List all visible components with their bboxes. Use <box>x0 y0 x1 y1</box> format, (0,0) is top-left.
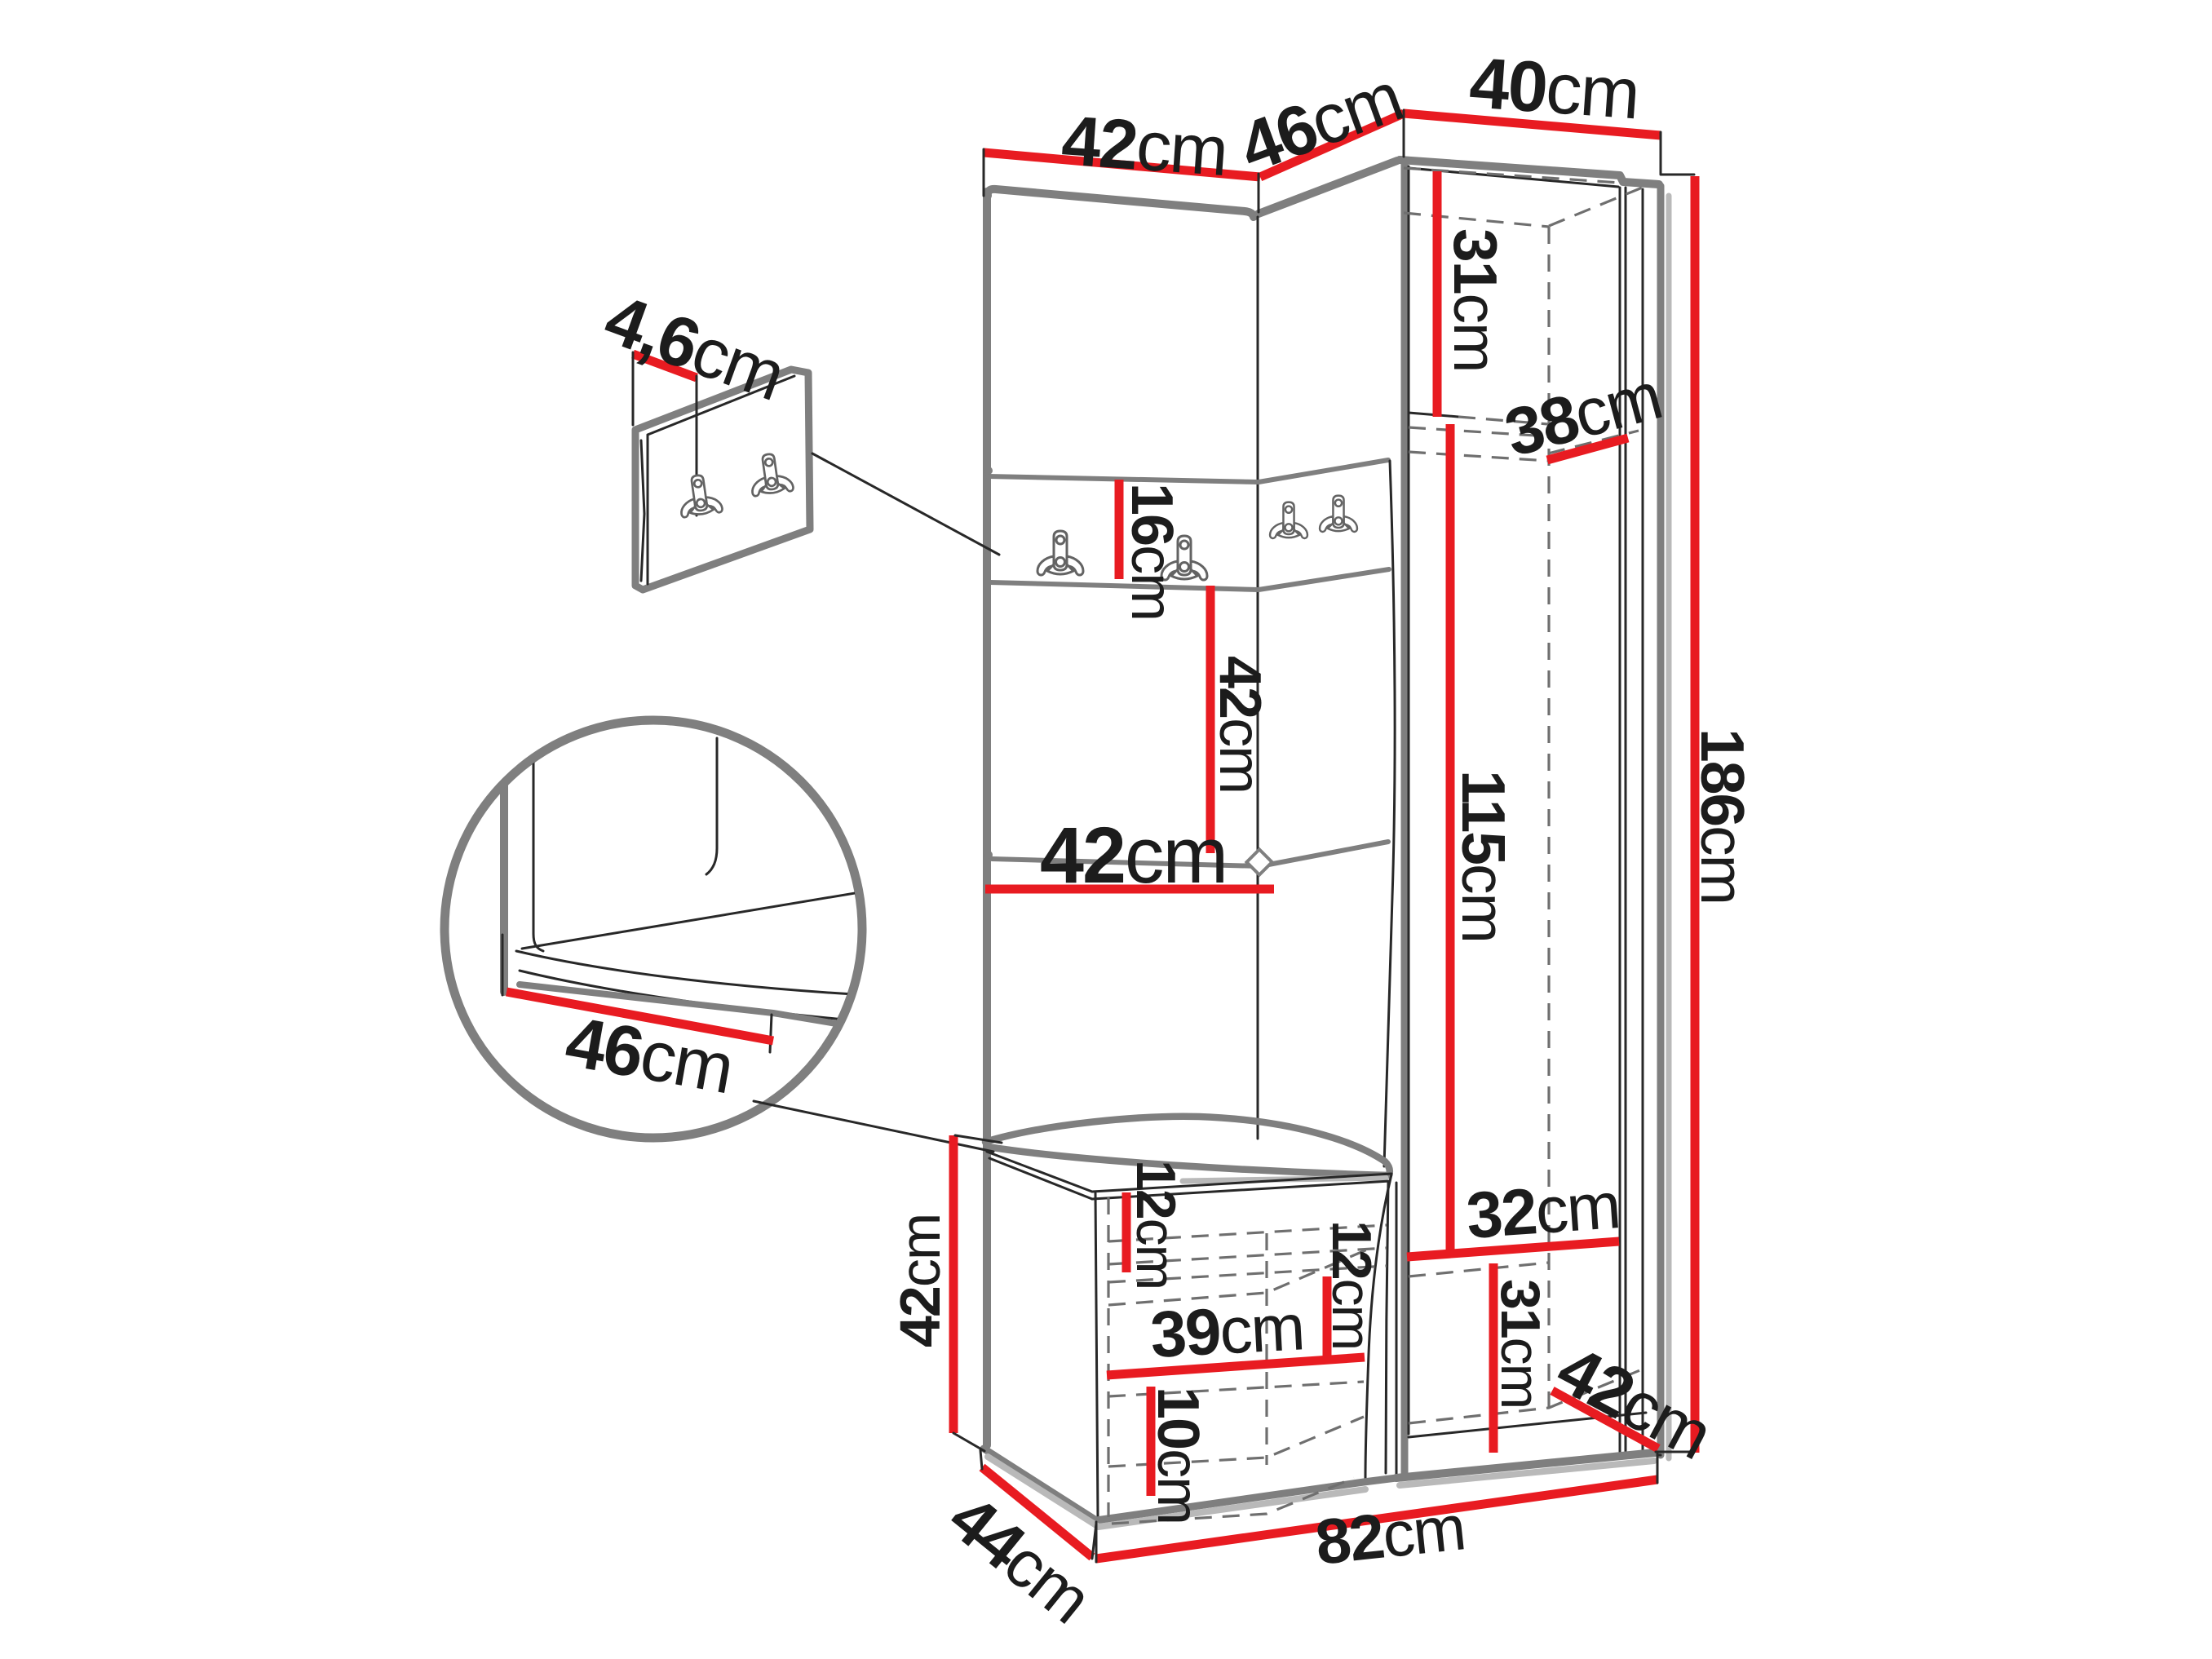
svg-text:115cm: 115cm <box>1449 770 1518 942</box>
svg-text:12cm: 12cm <box>1321 1220 1382 1349</box>
svg-text:12cm: 12cm <box>1125 1160 1187 1289</box>
svg-text:42cm: 42cm <box>1207 656 1272 793</box>
svg-text:39cm: 39cm <box>1148 1290 1305 1371</box>
svg-text:42cm: 42cm <box>1040 811 1227 900</box>
svg-text:42cm: 42cm <box>1060 101 1230 191</box>
svg-text:4,6cm: 4,6cm <box>595 280 794 416</box>
svg-text:40cm: 40cm <box>1467 42 1642 134</box>
svg-text:42cm: 42cm <box>888 1214 952 1347</box>
svg-text:44cm: 44cm <box>936 1480 1104 1637</box>
svg-text:82cm: 82cm <box>1312 1491 1468 1578</box>
svg-text:10cm: 10cm <box>1145 1387 1210 1524</box>
svg-text:32cm: 32cm <box>1464 1169 1621 1252</box>
svg-text:16cm: 16cm <box>1119 483 1184 620</box>
svg-text:186cm: 186cm <box>1688 728 1757 904</box>
svg-text:31cm: 31cm <box>1489 1279 1551 1408</box>
svg-text:31cm: 31cm <box>1441 228 1510 371</box>
